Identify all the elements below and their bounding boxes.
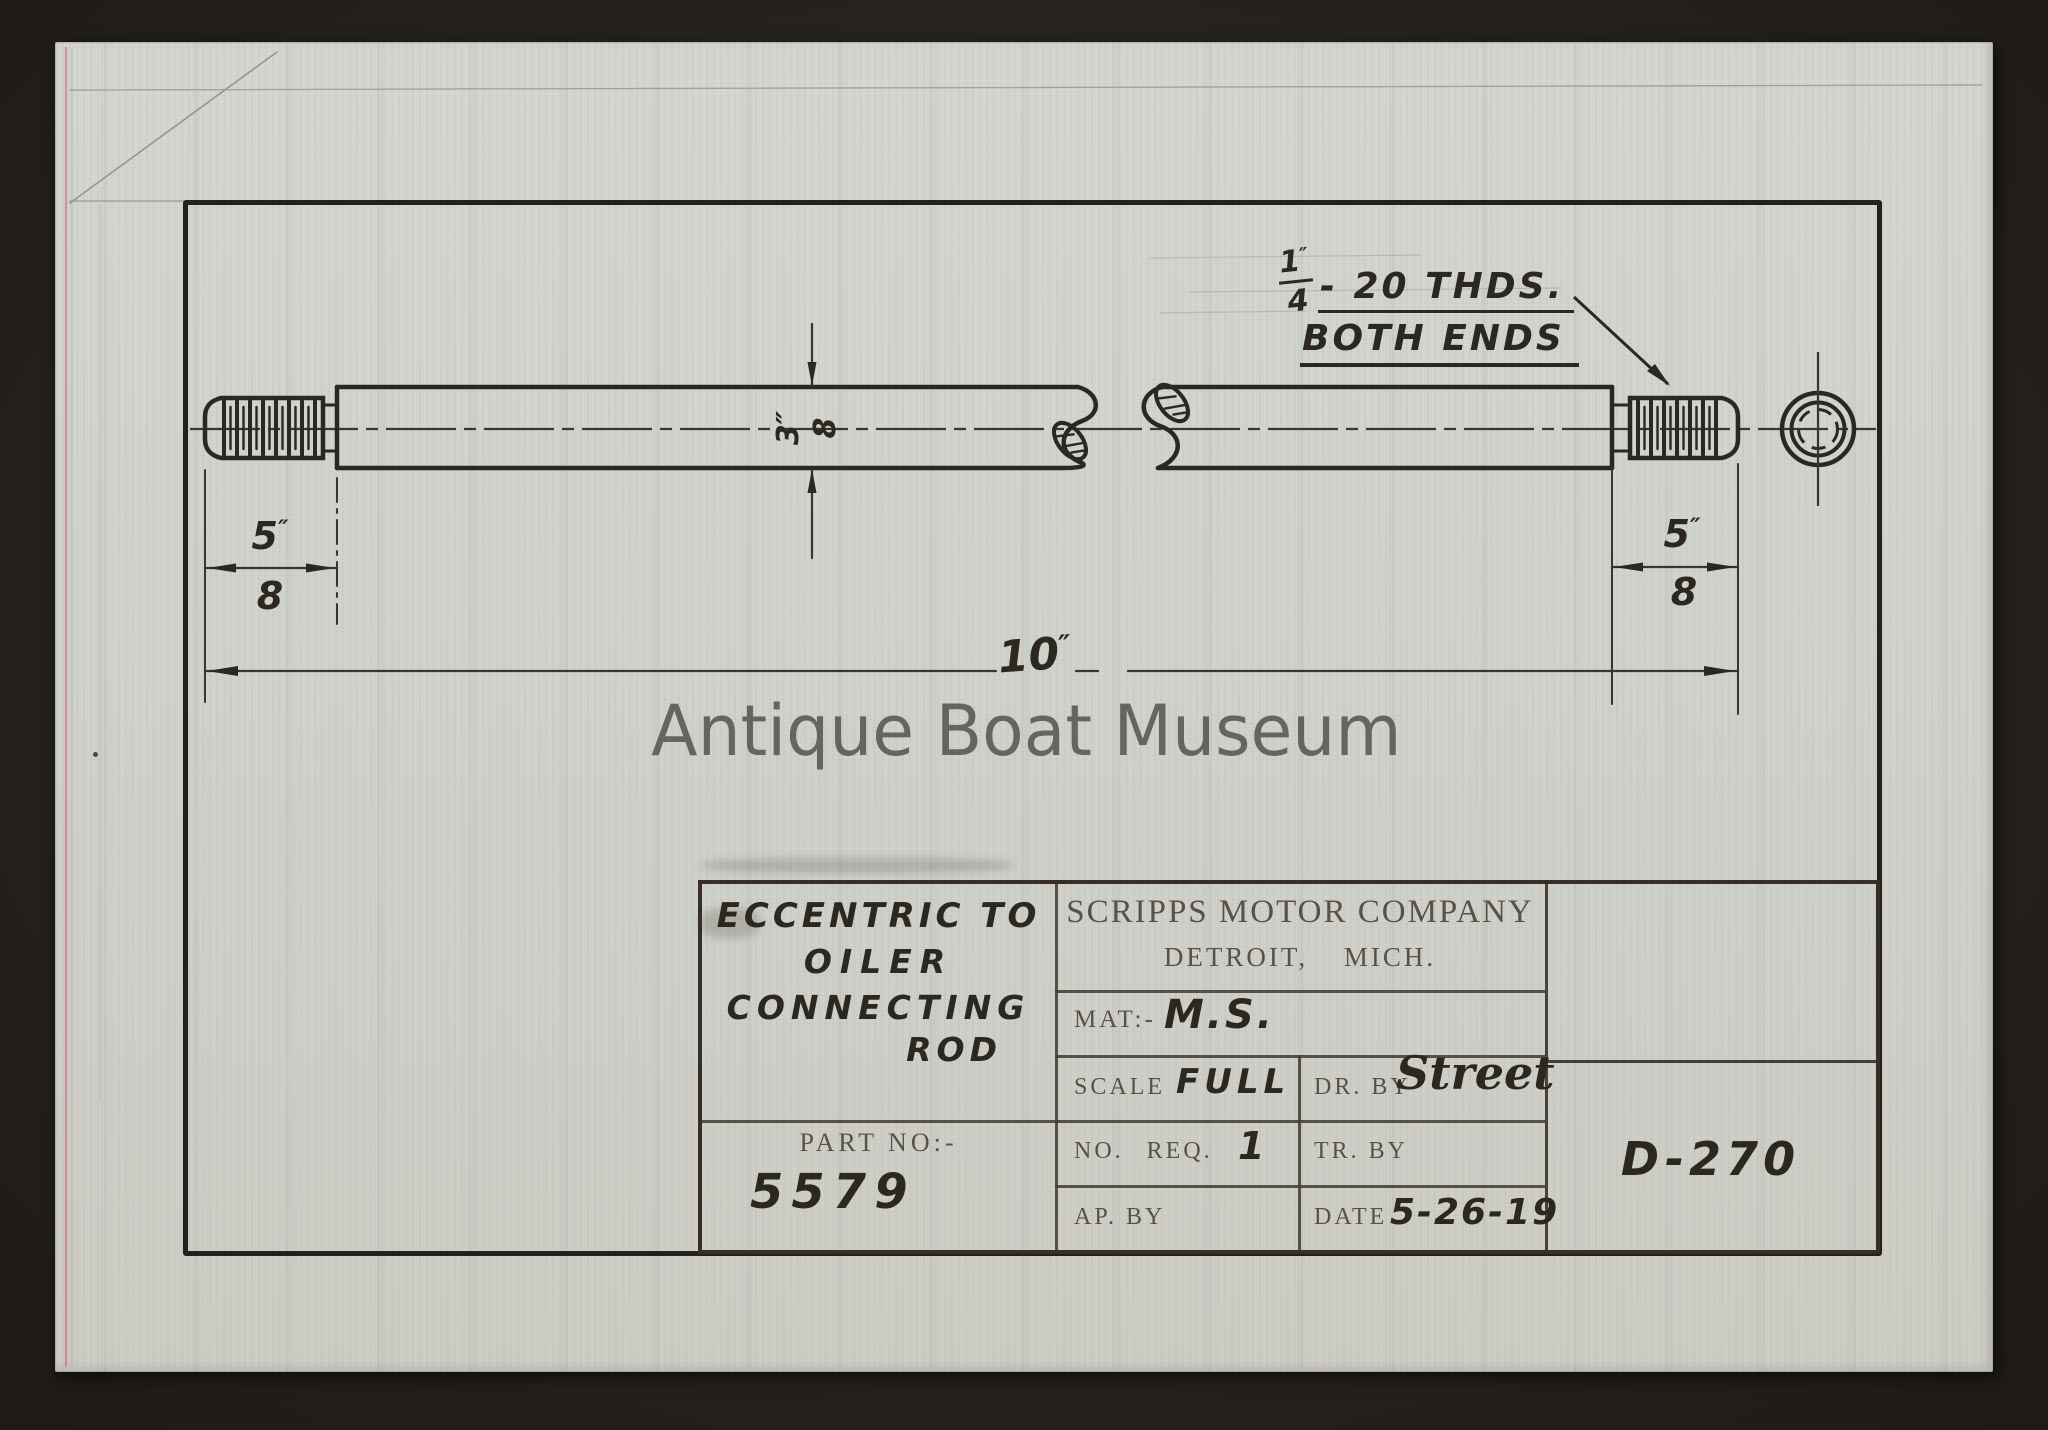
part-no-value: 5579 (750, 1164, 916, 1220)
title-block-divider (1545, 1060, 1876, 1063)
inch-mark: ″ (1299, 244, 1309, 266)
scanned-blueprint-page: { "colors": { "paper": "#d1d3cd", "ink":… (0, 0, 2048, 1430)
title-block-divider (702, 1120, 1545, 1123)
dim-left-thread-numerator: 5″ (234, 514, 306, 558)
date-label: DATE (1314, 1204, 1387, 1231)
watermark: Antique Boat Museum (648, 694, 1405, 768)
ink-speck (93, 752, 98, 757)
no-req-value: 1 (1238, 1124, 1264, 1168)
scale-label: SCALE (1074, 1074, 1165, 1101)
no-req-label: NO. REQ. (1074, 1138, 1213, 1165)
date-value: 5-26-19 (1390, 1192, 1559, 1233)
part-no-label: PART NO:- (702, 1128, 1055, 1158)
inch-mark: ″ (1058, 630, 1072, 662)
thread-note-denominator: 4 (1286, 283, 1310, 320)
title-block-divider (1298, 1055, 1301, 1250)
company-location: DETROIT, MICH. (1055, 942, 1545, 973)
dim-right-thread-numerator: 5″ (1646, 512, 1718, 556)
title-block-divider (1055, 1185, 1545, 1188)
title-block-divider (1055, 884, 1058, 1250)
company-name: SCRIPPS MOTOR COMPANY (1055, 894, 1545, 931)
inch-mark: ″ (771, 411, 806, 424)
title-block: ECCENTRIC TO OILER CONNECTING ROD PART N… (698, 880, 1880, 1254)
part-title-line1: ECCENTRIC TO (702, 896, 1055, 936)
part-title-line3: CONNECTING (702, 988, 1055, 1027)
drawn-by-value: Street (1396, 1046, 1554, 1100)
material-value: M.S. (1164, 992, 1275, 1038)
drawing-number: D-270 (1545, 1132, 1876, 1186)
title-block-divider (1055, 990, 1545, 993)
thread-note-line2: BOTH ENDS (1300, 318, 1579, 367)
approved-by-label: AP. BY (1074, 1204, 1165, 1231)
dim-overall-length: 10″ (996, 628, 1073, 684)
dim-right-thread-denominator: 8 (1652, 570, 1716, 614)
crease-line (70, 52, 277, 203)
part-title-line4: ROD (702, 1030, 1002, 1069)
traced-by-label: TR. BY (1314, 1138, 1408, 1165)
part-title-line2: OILER (702, 942, 1055, 981)
dim-left-thread-denominator: 8 (238, 574, 302, 618)
inch-mark: ″ (278, 515, 289, 543)
material-label: MAT:- (1074, 1006, 1156, 1034)
dim-diameter-denominator: 8 (808, 418, 843, 439)
thread-note-line1: - 20 THDS. (1318, 266, 1574, 313)
dim-diameter: 3″ 8 (771, 391, 843, 465)
inch-mark: ″ (1690, 513, 1701, 541)
dim-diameter-numerator: 3 (771, 424, 806, 445)
erased-pencil-smudge (702, 858, 1012, 873)
scale-value: FULL (1176, 1062, 1290, 1102)
